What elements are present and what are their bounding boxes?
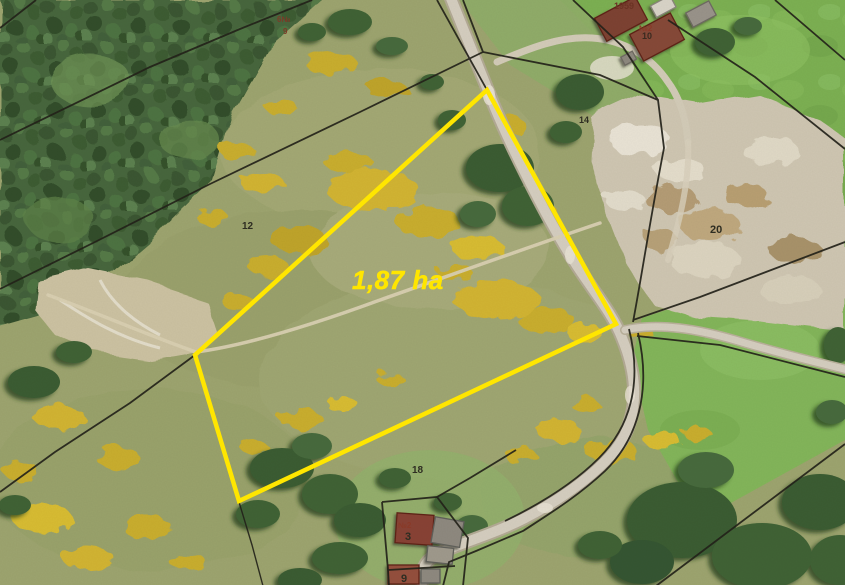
area-label: 1,87 ha	[352, 265, 444, 295]
map-label: 6№	[277, 15, 290, 24]
map-label: 3	[405, 531, 411, 543]
map-label: 9	[401, 573, 407, 585]
map-label: 1959	[614, 1, 634, 11]
map-label: 14	[579, 115, 589, 125]
map-label: 20	[710, 224, 722, 236]
map-image[interactable]: 1,87 ha 1214201839101959№2№26№9	[0, 0, 845, 585]
map-label: 12	[242, 221, 254, 232]
map-label: 9	[283, 27, 288, 36]
map-label: №2	[398, 521, 412, 530]
map-viewport[interactable]: 1,87 ha 1214201839101959№2№26№9	[0, 0, 845, 585]
map-label: 18	[412, 465, 424, 476]
map-label: №2	[639, 24, 653, 33]
